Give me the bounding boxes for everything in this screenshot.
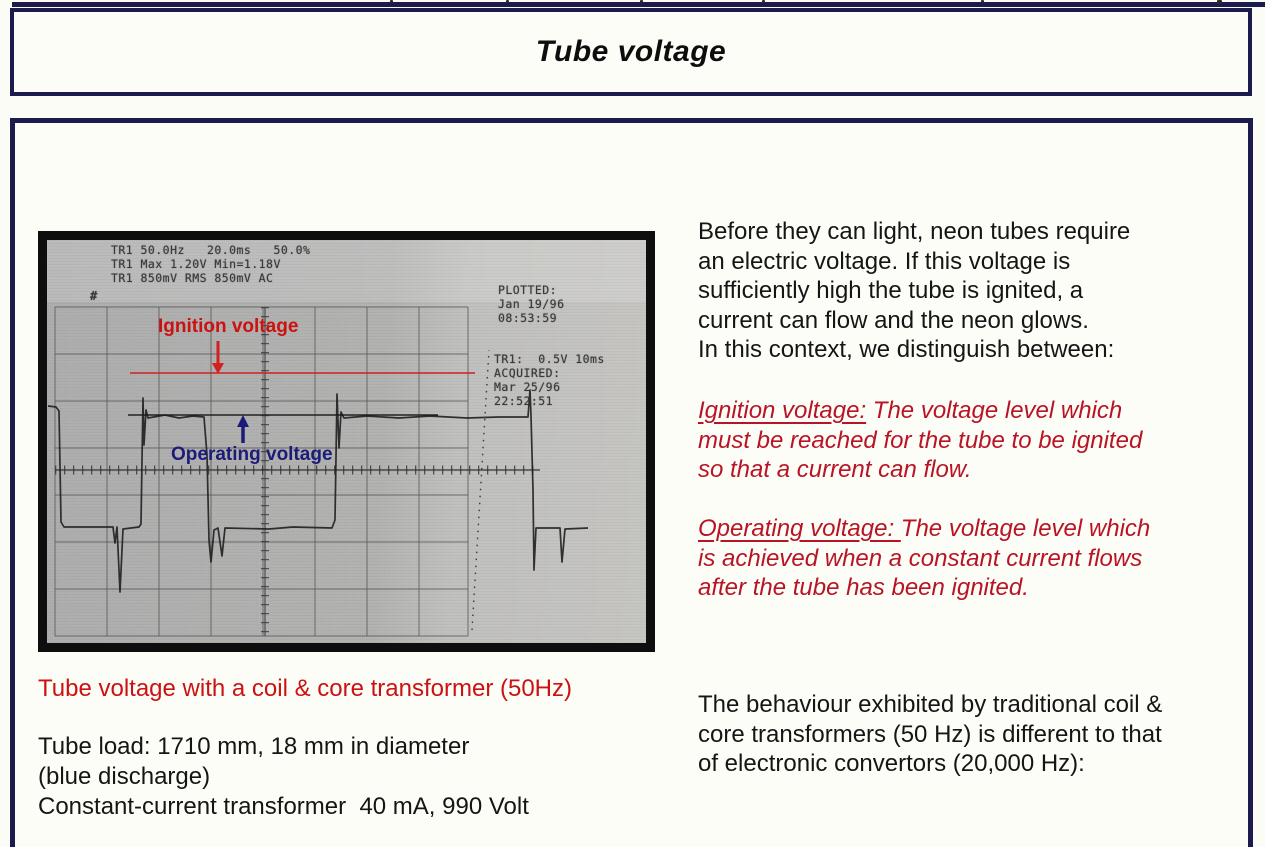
tube-details: Tube load: 1710 mm, 18 mm in diameter (b… xyxy=(38,732,678,822)
operating-voltage-label: Operating voltage xyxy=(171,444,333,466)
oscilloscope-photo: TR1 50.0Hz 20.0ms 50.0% TR1 Max 1.20V Mi… xyxy=(38,231,655,652)
operating-definition: Operating voltage: The voltage level whi… xyxy=(698,514,1258,603)
scope-readout-text: TR1 50.0Hz 20.0ms 50.0% TR1 Max 1.20V Mi… xyxy=(111,243,310,285)
voltage-waveform-trace xyxy=(48,390,588,592)
intro-paragraph: Before they can light, neon tubes requir… xyxy=(698,217,1258,365)
ignition-voltage-label: Ignition voltage xyxy=(158,316,298,338)
scope-acquired-text: TR1: 0.5V 10ms ACQUIRED: Mar 25/96 22:52… xyxy=(494,352,605,408)
clipped-text-fragment xyxy=(981,0,984,3)
operating-arrow-head xyxy=(237,415,249,427)
ignition-term: Ignition voltage: xyxy=(698,397,866,424)
scope-hash-mark: # xyxy=(90,289,98,303)
clipped-text-fragment xyxy=(762,0,765,3)
figure-caption: Tube voltage with a coil & core transfor… xyxy=(38,674,678,704)
document-page: Tube voltage xyxy=(0,0,1265,847)
scope-plotted-text: PLOTTED: Jan 19/96 08:53:59 xyxy=(498,283,564,325)
title-box: Tube voltage xyxy=(10,8,1252,96)
page-title: Tube voltage xyxy=(536,35,726,69)
clipped-text-fragment xyxy=(506,0,509,3)
pen-retrace-dotted-line xyxy=(472,350,489,630)
closing-paragraph: The behaviour exhibited by traditional c… xyxy=(698,690,1258,779)
clipped-text-fragment xyxy=(1217,0,1222,4)
operating-term: Operating voltage: xyxy=(698,515,901,542)
clipped-text-fragment xyxy=(390,0,393,3)
clipped-text-fragment xyxy=(640,0,643,3)
clipped-top-border xyxy=(12,2,1265,7)
ignition-definition: Ignition voltage: The voltage level whic… xyxy=(698,396,1258,485)
